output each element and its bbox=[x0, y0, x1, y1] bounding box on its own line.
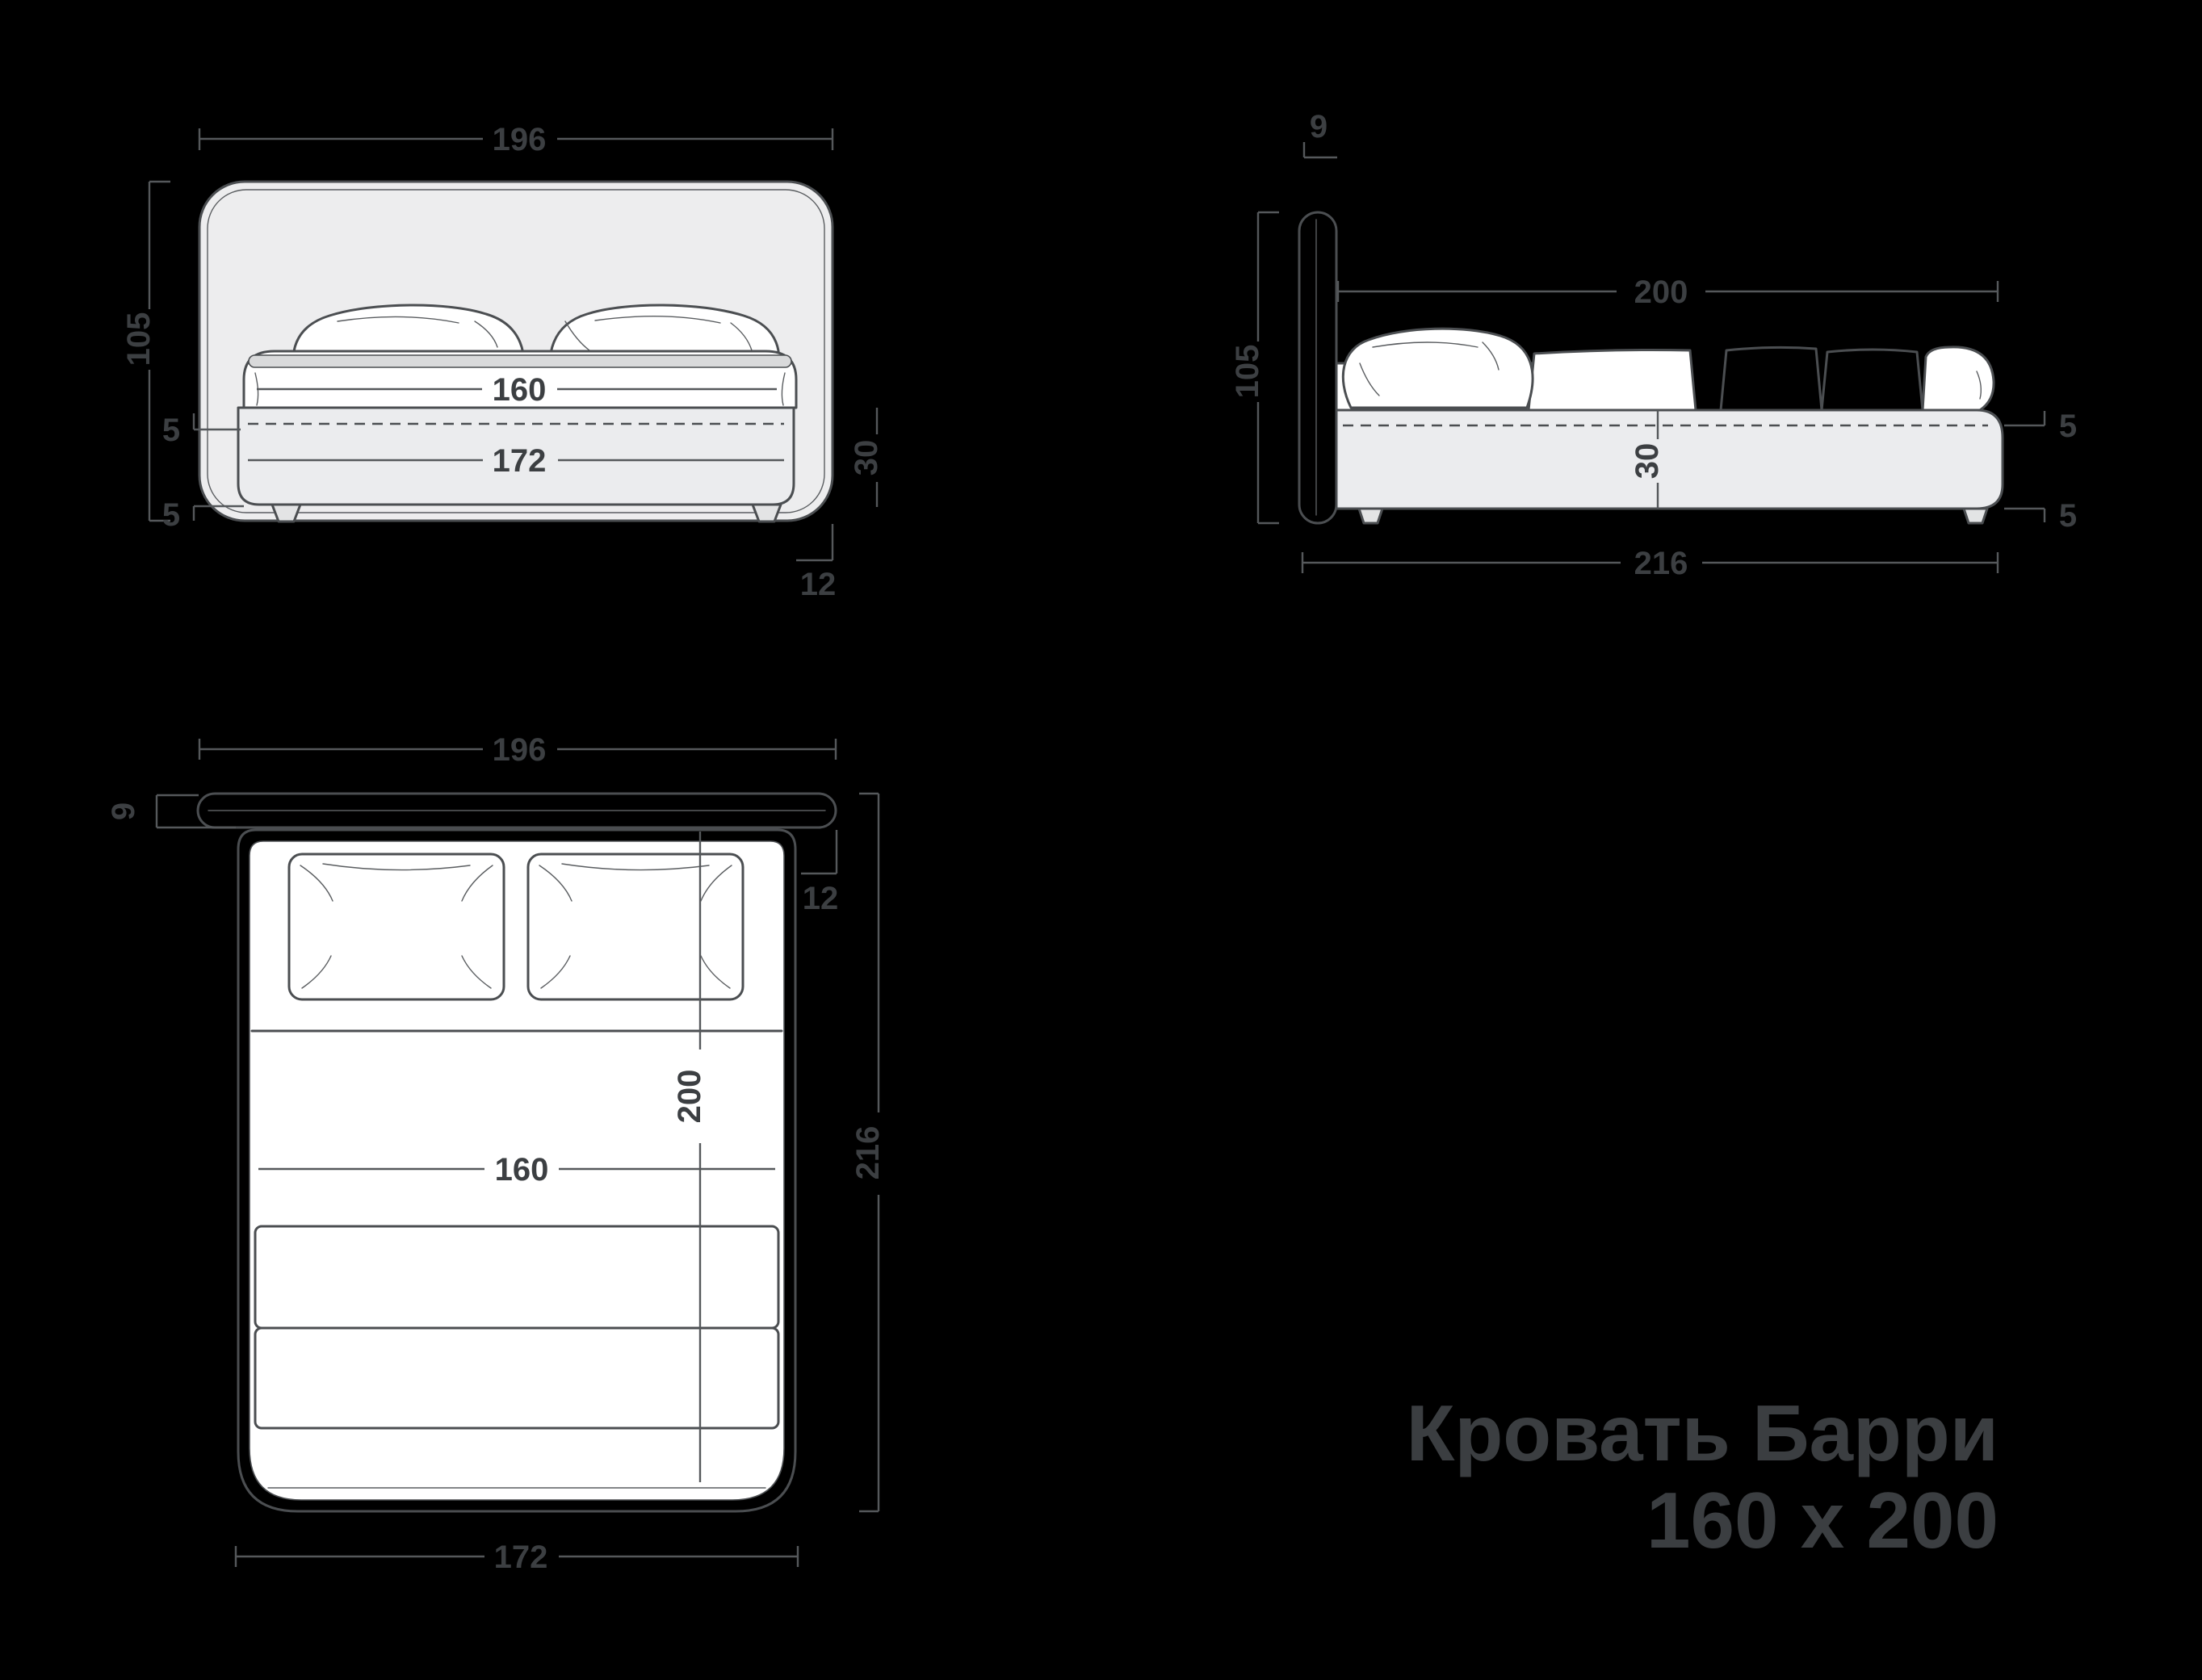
front-dim-rail-lip: 5 bbox=[162, 413, 180, 448]
side-blanket-1 bbox=[1721, 347, 1822, 410]
side-pillow bbox=[1343, 329, 1533, 408]
side-leg-left bbox=[1359, 509, 1382, 523]
top-view-drawing: 196 9 160 200 bbox=[106, 732, 886, 1575]
top-dim-frame-width: 172 bbox=[494, 1540, 548, 1575]
side-dim-mattress-length: 200 bbox=[1634, 274, 1688, 310]
side-headboard bbox=[1299, 212, 1336, 523]
side-dim-headboard-thickness: 9 bbox=[1310, 109, 1327, 145]
front-dim-overall-height: 105 bbox=[121, 312, 157, 367]
top-dim-headboard-overhang: 12 bbox=[803, 881, 839, 916]
side-dim-leg-height: 5 bbox=[2059, 498, 2077, 534]
side-leg-right bbox=[1964, 509, 1987, 523]
side-dim-rail-lip: 5 bbox=[2059, 408, 2077, 444]
bed-dimension-sheet: 160 172 196 105 5 5 30 12 bbox=[0, 0, 2202, 1680]
front-leg-left bbox=[272, 505, 300, 522]
top-dim-mattress-length: 200 bbox=[672, 1070, 707, 1124]
side-dim-overall-length: 216 bbox=[1634, 546, 1688, 581]
side-dim-overall-height: 105 bbox=[1230, 345, 1265, 399]
front-dim-frame-width: 172 bbox=[493, 443, 547, 479]
front-dim-headboard-overhang: 12 bbox=[800, 567, 837, 602]
product-title: Кровать Барри 160 x 200 bbox=[1407, 1390, 1999, 1565]
top-dim-overall-length: 216 bbox=[850, 1126, 886, 1180]
front-view-drawing: 160 172 196 105 5 5 30 12 bbox=[121, 122, 884, 602]
front-dim-mattress-width: 160 bbox=[493, 372, 547, 408]
top-dim-headboard-thickness: 9 bbox=[106, 802, 141, 820]
side-view-drawing: 9 105 200 30 5 5 216 bbox=[1230, 109, 2077, 581]
side-sheet bbox=[1529, 350, 1696, 411]
front-dim-overall-width: 196 bbox=[493, 122, 547, 157]
product-title-size: 160 x 200 bbox=[1407, 1477, 1999, 1565]
top-dim-overall-width: 196 bbox=[493, 732, 547, 768]
product-title-name: Кровать Барри bbox=[1407, 1390, 1999, 1477]
top-pillow-right bbox=[528, 854, 743, 999]
side-dim-frame-height: 30 bbox=[1629, 443, 1665, 480]
front-dim-frame-height: 30 bbox=[849, 440, 884, 476]
top-pillow-left bbox=[289, 854, 504, 999]
front-dim-leg-height: 5 bbox=[162, 497, 180, 533]
side-blanket-2 bbox=[1822, 350, 1923, 410]
front-mattress-piping bbox=[249, 355, 791, 367]
front-leg-right bbox=[753, 505, 781, 522]
side-foot-roll bbox=[1923, 347, 1994, 410]
top-dim-mattress-width: 160 bbox=[495, 1152, 549, 1188]
